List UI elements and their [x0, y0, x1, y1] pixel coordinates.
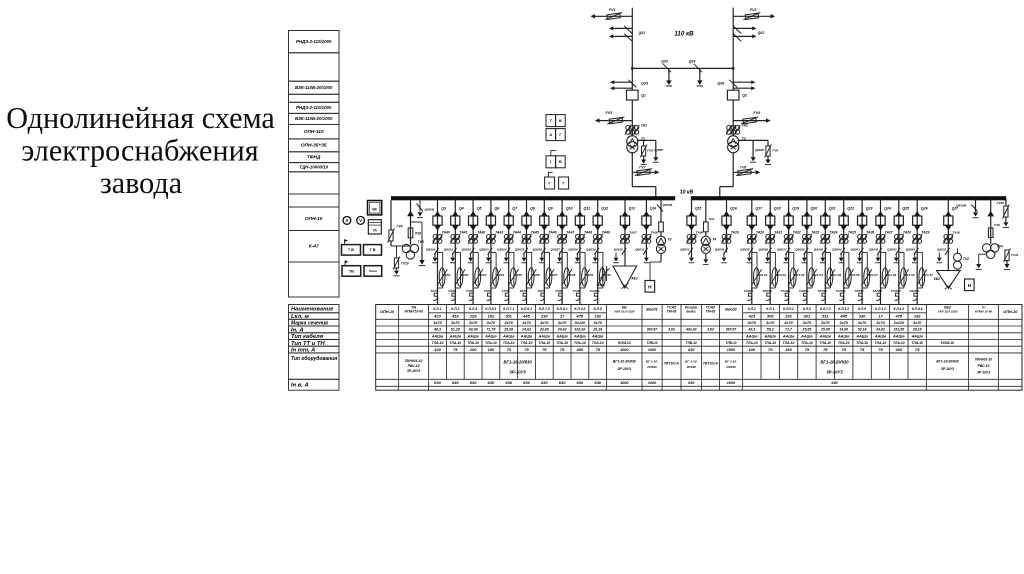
svg-text:электроснабжения: электроснабжения — [21, 134, 258, 168]
svg-text:309: 309 — [767, 314, 774, 319]
svg-text:1000: 1000 — [648, 348, 657, 352]
svg-text:ГV1.09: ГV1.09 — [905, 273, 915, 277]
svg-text:КБ2: КБ2 — [934, 277, 940, 281]
svg-text:3х70: 3х70 — [803, 321, 812, 325]
svg-text:3,63: 3,63 — [668, 328, 675, 332]
svg-text:ГV6: ГV6 — [772, 149, 778, 153]
svg-text:ГV1.05: ГV1.05 — [831, 273, 841, 277]
svg-text:ААШв: ААШв — [874, 335, 887, 339]
svg-text:ТА40: ТА40 — [442, 231, 450, 235]
svg-text:3х70: 3х70 — [469, 321, 478, 325]
svg-text:17: 17 — [878, 314, 883, 319]
svg-text:Т4: Т4 — [712, 238, 716, 242]
svg-text:630: 630 — [452, 380, 459, 385]
svg-text:УКЛ-10,5-3150: УКЛ-10,5-3150 — [938, 310, 958, 314]
svg-text:QS031: QS031 — [635, 248, 644, 252]
svg-text:Q24: Q24 — [884, 207, 891, 211]
svg-text:75: 75 — [823, 347, 828, 352]
svg-text:QS029: QS029 — [586, 248, 596, 252]
svg-text:ТV5: ТV5 — [418, 240, 424, 244]
svg-text:ТV4: ТV4 — [997, 245, 1003, 249]
svg-text:20/630: 20/630 — [686, 365, 697, 369]
svg-text:ТМ-63: ТМ-63 — [706, 310, 716, 314]
svg-text:ВГ-1-10-: ВГ-1-10- — [725, 360, 737, 364]
svg-text:КБ1: КБ1 — [632, 277, 638, 281]
svg-text:3х70: 3х70 — [766, 321, 775, 325]
svg-text:ТАЛ11: ТАЛ11 — [744, 289, 754, 293]
svg-text:ГV06: ГV06 — [532, 273, 540, 277]
svg-text:ААШв: ААШв — [892, 335, 905, 339]
svg-text:Q12: Q12 — [601, 207, 608, 211]
svg-text:ОПН-10: ОПН-10 — [305, 216, 323, 222]
svg-text:ТАЛ17: ТАЛ17 — [854, 289, 864, 293]
svg-text:К.Л.7.2: К.Л.7.2 — [820, 307, 831, 311]
svg-text:630: 630 — [523, 380, 530, 385]
svg-text:ТЛА-10: ТЛА-10 — [592, 341, 604, 345]
svg-text:ТА44: ТА44 — [513, 231, 521, 235]
svg-text:ГV09: ГV09 — [586, 273, 594, 277]
svg-text:РНДЗ-2-110/1000: РНДЗ-2-110/1000 — [296, 105, 332, 110]
svg-text:ГV1.01: ГV1.01 — [758, 273, 768, 277]
svg-text:ТАЛ1: ТАЛ1 — [430, 289, 438, 293]
svg-text:ТЛА-10: ТЛА-10 — [764, 341, 776, 345]
svg-text:К.Л.7.0: К.Л.7.0 — [539, 307, 550, 311]
svg-text:В: В — [559, 160, 562, 164]
svg-text:3Р-10У3: 3Р-10У3 — [407, 369, 420, 373]
svg-text:3Р-10У3: 3Р-10У3 — [977, 371, 990, 375]
svg-text:1000: 1000 — [620, 348, 629, 352]
svg-text:ГV04: ГV04 — [497, 273, 505, 277]
svg-text:Q26: Q26 — [921, 207, 929, 211]
svg-text:ААШв: ААШв — [855, 335, 868, 339]
svg-text:423: 423 — [433, 314, 441, 319]
svg-text:ТАЛ20: ТАЛ20 — [909, 289, 919, 293]
svg-text:ГV08: ГV08 — [568, 273, 576, 277]
svg-text:QS3: QS3 — [661, 60, 668, 64]
svg-text:24,62: 24,62 — [875, 328, 885, 332]
svg-text:ТЛВ-10: ТЛВ-10 — [646, 341, 657, 345]
svg-text:ААШв: ААШв — [910, 335, 923, 339]
svg-text:QS032: QS032 — [937, 248, 946, 252]
svg-text:ААШв: ААШв — [449, 335, 462, 339]
svg-text:ТЛА-10: ТЛА-10 — [538, 341, 550, 345]
svg-text:3х70: 3х70 — [858, 321, 867, 325]
svg-text:3х70: 3х70 — [593, 321, 602, 325]
svg-text:Q14: Q14 — [650, 207, 656, 211]
svg-text:QS2: QS2 — [758, 31, 765, 35]
svg-text:75: 75 — [841, 347, 846, 352]
svg-text:Q15: Q15 — [695, 207, 701, 211]
svg-text:ТАЛ16: ТАЛ16 — [836, 289, 846, 293]
svg-text:ТЛА-10: ТЛА-10 — [503, 341, 515, 345]
svg-text:ОПН-10: ОПН-10 — [1003, 309, 1018, 314]
svg-text:ТА47: ТА47 — [566, 231, 574, 235]
svg-text:ТЛА-10: ТЛА-10 — [432, 341, 444, 345]
svg-text:ТДН-10000/10: ТДН-10000/10 — [299, 165, 328, 170]
svg-text:FV4: FV4 — [753, 111, 760, 115]
svg-text:ВГ1-10-20/630: ВГ1-10-20/630 — [504, 360, 533, 365]
svg-text:75: 75 — [878, 347, 883, 352]
svg-text:Тип оборудования: Тип оборудования — [291, 355, 337, 362]
svg-text:ВГ1-10-20/630: ВГ1-10-20/630 — [613, 360, 636, 364]
svg-text:Q4: Q4 — [459, 207, 464, 211]
svg-text:ТАЛ12: ТАЛ12 — [762, 289, 772, 293]
svg-text:630: 630 — [594, 380, 601, 385]
svg-text:ВЗК-110Б-20/1000: ВЗК-110Б-20/1000 — [295, 85, 333, 90]
svg-text:ГV03: ГV03 — [479, 273, 487, 277]
svg-text:75: 75 — [805, 347, 810, 352]
svg-text:Н: Н — [968, 283, 972, 289]
svg-text:QS21М: QS21М — [663, 203, 673, 207]
svg-text:ТЛА-10: ТЛА-10 — [911, 341, 923, 345]
svg-text:ТЛА-10: ТЛА-10 — [783, 341, 795, 345]
svg-text:ТАЛ19: ТАЛ19 — [891, 289, 901, 293]
svg-text:К.Л.8.2: К.Л.8.2 — [838, 307, 849, 311]
svg-text:ААШв: ААШв — [819, 335, 832, 339]
svg-text:ТА45: ТА45 — [531, 231, 539, 235]
svg-text:3х70: 3х70 — [839, 321, 848, 325]
svg-text:1000: 1000 — [620, 381, 629, 385]
svg-text:Q19: Q19 — [792, 207, 799, 211]
svg-text:Wr: Wr — [372, 208, 377, 212]
svg-text:128: 128 — [470, 314, 477, 319]
svg-text:ГV9: ГV9 — [397, 225, 403, 229]
svg-text:ТЛА-10: ТЛА-10 — [746, 341, 758, 345]
svg-text:967,87: 967,87 — [647, 328, 658, 332]
svg-text:Т В: Т В — [348, 248, 354, 252]
svg-text:QS042: QS042 — [869, 248, 879, 252]
svg-text:ПКТ101-К: ПКТ101-К — [703, 362, 719, 366]
svg-text:ТV2: ТV2 — [963, 257, 969, 261]
svg-text:3х70: 3х70 — [504, 321, 513, 325]
svg-text:К.Л.6.6: К.Л.6.6 — [912, 307, 923, 311]
svg-text:967,87: 967,87 — [726, 328, 737, 332]
svg-text:ПКН001-10: ПКН001-10 — [975, 358, 992, 362]
svg-text:ТА41: ТА41 — [460, 231, 468, 235]
svg-text:3Р-10У3: 3Р-10У3 — [618, 367, 631, 371]
svg-text:ТАЛ5: ТАЛ5 — [502, 289, 510, 293]
svg-text:ГV10: ГV10 — [401, 262, 409, 266]
svg-text:3х70: 3х70 — [540, 321, 549, 325]
svg-text:330: 330 — [859, 314, 866, 319]
svg-text:К.Л.2: К.Л.2 — [451, 307, 459, 311]
svg-text:ТВ: ТВ — [349, 269, 354, 273]
svg-text:33,65: 33,65 — [540, 328, 550, 332]
svg-text:192: 192 — [914, 314, 921, 319]
svg-text:ААШв: ААШв — [837, 335, 850, 339]
svg-text:3х70: 3х70 — [487, 321, 496, 325]
svg-text:К.Л.5: К.Л.5 — [594, 307, 602, 311]
svg-text:ГV1.02: ГV1.02 — [776, 273, 786, 277]
svg-text:Пена: Пена — [369, 269, 377, 273]
svg-text:150: 150 — [785, 347, 792, 352]
svg-text:17: 17 — [560, 314, 565, 319]
svg-text:75: 75 — [453, 347, 458, 352]
svg-text:ТАЛ15: ТАЛ15 — [817, 289, 827, 293]
svg-text:14,68: 14,68 — [839, 328, 848, 332]
svg-text:ТА26: ТА26 — [866, 231, 874, 235]
svg-text:14,62: 14,62 — [522, 328, 531, 332]
svg-text:25,08: 25,08 — [503, 328, 513, 332]
svg-text:ААШв: ААШв — [555, 335, 568, 339]
svg-text:3х70: 3х70 — [433, 321, 442, 325]
svg-text:ГV07: ГV07 — [550, 273, 558, 277]
svg-text:QS021: QS021 — [444, 248, 454, 252]
svg-text:ААШв: ААШв — [800, 335, 813, 339]
svg-text:QS022: QS022 — [462, 248, 472, 252]
svg-text:ТЛА-10: ТЛА-10 — [856, 341, 868, 345]
svg-text:Н: Н — [648, 285, 652, 291]
svg-text:75: 75 — [560, 347, 565, 352]
svg-text:ГV1.06: ГV1.06 — [850, 273, 860, 277]
svg-text:К.Л.7.1: К.Л.7.1 — [503, 307, 514, 311]
svg-text:ТАЛ18: ТАЛ18 — [872, 289, 882, 293]
svg-text:QS033: QS033 — [680, 248, 689, 252]
svg-text:630: 630 — [488, 380, 495, 385]
svg-text:V: V — [359, 218, 362, 223]
svg-text:181,58: 181,58 — [893, 328, 904, 332]
svg-text:75: 75 — [595, 347, 600, 352]
svg-text:ТАЛ.В: ТАЛ.В — [596, 283, 604, 287]
svg-text:QS036: QS036 — [759, 248, 769, 252]
svg-text:ТЛА-10: ТЛА-10 — [893, 341, 905, 345]
svg-text:В: В — [559, 119, 562, 123]
svg-text:1000: 1000 — [727, 348, 736, 352]
svg-text:УКЛ-10,5-3150: УКЛ-10,5-3150 — [614, 310, 635, 314]
svg-text:445: 445 — [839, 314, 847, 319]
svg-text:93,09: 93,09 — [469, 328, 478, 332]
svg-text:ТЛА-10: ТЛА-10 — [467, 341, 479, 345]
svg-text:Q22: Q22 — [847, 207, 854, 211]
svg-text:К.Л.5.2: К.Л.5.2 — [783, 307, 794, 311]
svg-text:Наименование: Наименование — [291, 307, 334, 313]
svg-text:Q25: Q25 — [902, 207, 910, 211]
svg-text:ТА43: ТА43 — [495, 231, 503, 235]
svg-text:ГV1.10: ГV1.10 — [923, 273, 933, 277]
svg-text:QS023: QS023 — [479, 248, 489, 252]
svg-text:ТА24: ТА24 — [830, 231, 838, 235]
svg-text:QS026: QS026 — [533, 248, 543, 252]
svg-text:QS32М: QS32М — [956, 204, 966, 208]
svg-text:НТМИ 10-66: НТМИ 10-66 — [404, 310, 423, 314]
svg-text:ТАЛ9: ТАЛ9 — [573, 289, 581, 293]
svg-text:К.Л.6: К.Л.6 — [803, 307, 811, 311]
svg-text:75: 75 — [524, 347, 529, 352]
svg-text:3х70: 3х70 — [913, 321, 922, 325]
svg-text:75: 75 — [915, 347, 920, 352]
svg-text:ТА19: ТА19 — [731, 231, 739, 235]
svg-text:ОПН-10: ОПН-10 — [380, 309, 395, 314]
svg-text:QS4: QS4 — [689, 60, 696, 64]
svg-text:выкл.: выкл. — [686, 310, 696, 314]
svg-text:QS038: QS038 — [795, 248, 805, 252]
svg-text:Q1: Q1 — [641, 94, 646, 98]
svg-text:ТЛА-10: ТЛА-10 — [449, 341, 461, 345]
svg-text:511: 511 — [822, 314, 829, 319]
svg-text:ТЛВ-10: ТЛВ-10 — [686, 341, 697, 345]
svg-text:FV1: FV1 — [609, 8, 616, 12]
svg-text:ВГ1-10-20/630: ВГ1-10-20/630 — [936, 360, 958, 364]
svg-text:К.Л.5.1: К.Л.5.1 — [485, 307, 496, 311]
svg-text:511: 511 — [506, 314, 513, 319]
svg-text:Тип кабеля: Тип кабеля — [291, 333, 324, 340]
svg-text:РНДЗ-2-110/1000: РНДЗ-2-110/1000 — [296, 39, 332, 44]
svg-text:25,08: 25,08 — [820, 328, 830, 332]
svg-text:РВС-10: РВС-10 — [978, 364, 990, 368]
svg-text:ТЛА-10: ТЛА-10 — [875, 341, 887, 345]
svg-text:418: 418 — [451, 314, 459, 319]
svg-text:ТА30: ТА30 — [953, 231, 961, 235]
svg-text:48,3: 48,3 — [433, 328, 441, 332]
svg-text:К.Л.9: К.Л.9 — [858, 307, 866, 311]
svg-text:ТАЛ8: ТАЛ8 — [555, 289, 563, 293]
svg-text:ТА27: ТА27 — [885, 231, 893, 235]
svg-text:ААШв: ААШв — [782, 335, 795, 339]
svg-text:478: 478 — [894, 314, 902, 319]
svg-text:ГV05: ГV05 — [515, 273, 523, 277]
svg-text:ТЛА-10: ТЛА-10 — [556, 341, 568, 345]
svg-text:П12: П12 — [709, 217, 715, 221]
svg-text:3х120: 3х120 — [575, 321, 586, 325]
svg-text:П19: П19 — [994, 223, 1000, 227]
svg-text:Ввод2: Ввод2 — [725, 308, 737, 312]
svg-text:ААШв: ААШв — [502, 335, 515, 339]
svg-text:ААШв: ААШв — [591, 335, 604, 339]
svg-text:Q11: Q11 — [584, 207, 591, 211]
svg-text:75: 75 — [768, 347, 773, 352]
svg-text:445: 445 — [522, 314, 530, 319]
svg-text:QS027: QS027 — [551, 248, 561, 252]
svg-text:400: 400 — [894, 347, 902, 352]
svg-text:630: 630 — [688, 381, 695, 385]
svg-text:ТА46: ТА46 — [549, 231, 557, 235]
svg-text:29,18: 29,18 — [592, 328, 602, 332]
svg-text:182: 182 — [488, 314, 495, 319]
svg-text:ТАЛ6: ТАЛ6 — [519, 289, 527, 293]
svg-text:ОПН-110: ОПН-110 — [304, 129, 324, 135]
svg-text:100: 100 — [434, 347, 441, 352]
svg-text:ТА09: ТА09 — [696, 231, 704, 235]
svg-text:К.Л.4: К.Л.4 — [469, 307, 477, 311]
svg-text:завода: завода — [100, 166, 182, 200]
svg-text:3х70: 3х70 — [821, 321, 830, 325]
svg-text:ПКТ101-К: ПКТ101-К — [664, 362, 680, 366]
svg-text:ГV7: ГV7 — [639, 165, 645, 169]
svg-text:ААШв: ААШв — [745, 335, 758, 339]
svg-text:ТА1: ТА1 — [641, 124, 647, 128]
svg-text:1000: 1000 — [727, 381, 736, 385]
svg-text:3х70: 3х70 — [451, 321, 460, 325]
svg-text:Iн в, А: Iн в, А — [291, 383, 309, 389]
svg-text:Q8: Q8 — [530, 207, 535, 211]
svg-text:ВГ-1-10-: ВГ-1-10- — [685, 360, 697, 364]
svg-text:75: 75 — [542, 347, 547, 352]
svg-text:75: 75 — [860, 347, 865, 352]
svg-text:301: 301 — [804, 314, 811, 319]
svg-text:ТАЛ10: ТАЛ10 — [590, 289, 600, 293]
svg-text:29,18: 29,18 — [912, 328, 922, 332]
svg-text:3х70: 3х70 — [558, 321, 567, 325]
svg-text:20/630: 20/630 — [725, 365, 736, 369]
svg-text:ОПН-35+35: ОПН-35+35 — [301, 143, 327, 149]
svg-text:ТФНД: ТФНД — [307, 155, 321, 161]
svg-text:3х70: 3х70 — [784, 321, 793, 325]
svg-text:3х70: 3х70 — [748, 321, 757, 325]
svg-text:QS030: QS030 — [614, 248, 623, 252]
svg-text:ТЛА-10: ТЛА-10 — [574, 341, 586, 345]
svg-text:QS044: QS044 — [906, 248, 916, 252]
svg-text:К.Л.4.2: К.Л.4.2 — [893, 307, 904, 311]
svg-text:ТА49: ТА49 — [602, 231, 610, 235]
svg-text:192: 192 — [785, 314, 792, 319]
svg-text:3х70: 3х70 — [876, 321, 885, 325]
svg-text:75: 75 — [506, 347, 511, 352]
svg-text:1000: 1000 — [648, 381, 657, 385]
svg-text:ААШв: ААШв — [538, 335, 551, 339]
svg-text:ААШв: ААШв — [484, 335, 497, 339]
svg-text:Однолинейная схема: Однолинейная схема — [6, 101, 275, 135]
svg-text:71,78: 71,78 — [486, 328, 495, 332]
svg-text:Q20: Q20 — [811, 207, 818, 211]
svg-text:ААШв: ААШв — [431, 335, 444, 339]
svg-text:Т В: Т В — [369, 248, 375, 252]
svg-text:ГV30: ГV30 — [997, 201, 1005, 205]
svg-text:ТАЛ4: ТАЛ4 — [484, 289, 492, 293]
svg-text:НТМИ 10-66: НТМИ 10-66 — [975, 310, 993, 314]
svg-text:(QS5Р: (QS5Р — [654, 148, 663, 152]
svg-text:3Р-10У3: 3Р-10У3 — [509, 370, 526, 375]
svg-text:QS6: QS6 — [717, 82, 724, 86]
svg-text:ТА07: ТА07 — [629, 231, 637, 235]
svg-text:П18: П18 — [415, 232, 421, 236]
svg-text:ТЛА-10: ТЛА-10 — [521, 341, 533, 345]
svg-text:ТА28: ТА28 — [903, 231, 911, 235]
svg-text:630: 630 — [505, 380, 512, 385]
svg-text:630: 630 — [831, 381, 838, 385]
svg-text:Vh: Vh — [373, 228, 377, 232]
svg-text:ТМ-63: ТМ-63 — [667, 310, 677, 314]
svg-text:48,3: 48,3 — [747, 328, 755, 332]
svg-text:К.Л.3: К.Л.3 — [766, 307, 774, 311]
svg-text:630: 630 — [541, 380, 548, 385]
svg-text:ТА08: ТА08 — [651, 231, 659, 235]
svg-text:ВГ-1-10-: ВГ-1-10- — [646, 360, 658, 364]
svg-text:ТА23: ТА23 — [811, 231, 819, 235]
svg-text:10 кВ: 10 кВ — [680, 190, 694, 196]
svg-text:ААШв: ААШв — [763, 335, 776, 339]
svg-text:QS1: QS1 — [639, 31, 646, 35]
svg-text:55,2: 55,2 — [767, 328, 774, 332]
svg-text:QS037: QS037 — [777, 248, 787, 252]
svg-text:ТАЛ14: ТАЛ14 — [799, 289, 809, 293]
svg-text:ГV02: ГV02 — [461, 273, 469, 277]
svg-text:3Р-10У3: 3Р-10У3 — [826, 370, 843, 375]
svg-text:ТАЛ3: ТАЛ3 — [466, 289, 474, 293]
svg-text:ТА2: ТА2 — [742, 124, 748, 128]
svg-text:Q2: Q2 — [742, 94, 747, 98]
svg-text:ГV01: ГV01 — [443, 273, 451, 277]
svg-text:Q3: Q3 — [441, 207, 446, 211]
svg-text:ТА21: ТА21 — [774, 231, 782, 235]
svg-text:QS028: QS028 — [568, 248, 578, 252]
svg-text:І: І — [550, 160, 551, 164]
svg-text:ТЛА-10: ТЛА-10 — [819, 341, 831, 345]
svg-text:24,62: 24,62 — [557, 328, 567, 332]
svg-text:Q21: Q21 — [829, 207, 836, 211]
svg-text:Q13: Q13 — [629, 207, 635, 211]
svg-text:К.Л.4.2: К.Л.4.2 — [574, 307, 585, 311]
svg-text:Q18: Q18 — [774, 207, 781, 211]
